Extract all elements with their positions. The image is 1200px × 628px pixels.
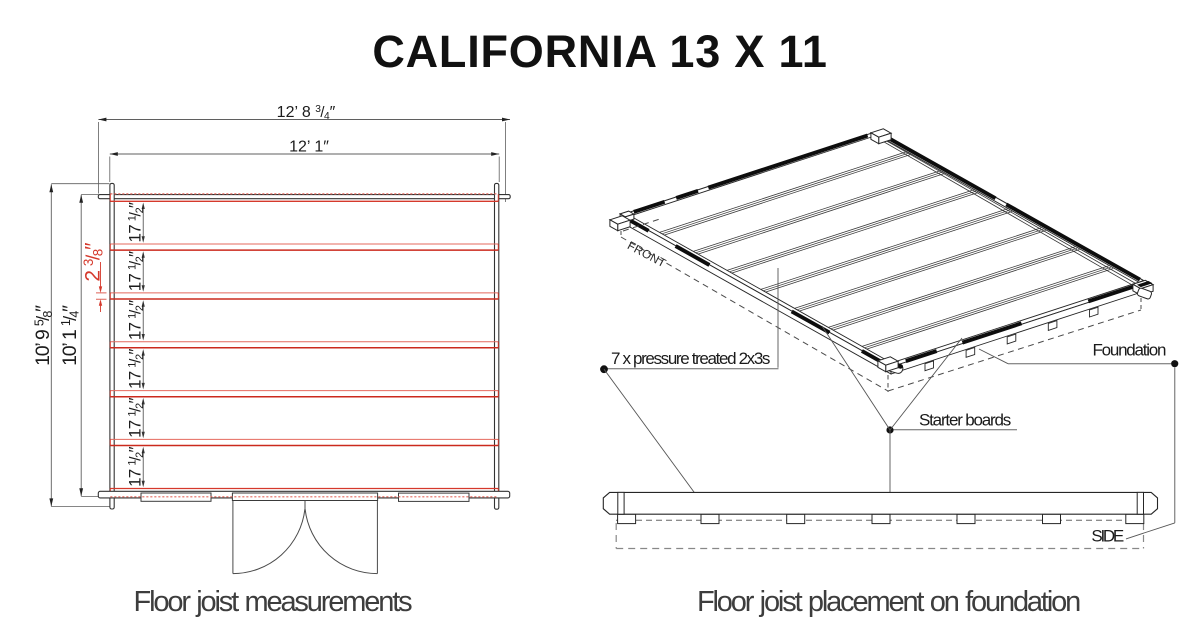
svg-text:17 1/2″: 17 1/2″ xyxy=(125,300,145,340)
svg-text:17 1/2″: 17 1/2″ xyxy=(125,202,145,242)
svg-text:12’ 1″: 12’ 1″ xyxy=(289,139,329,156)
svg-text:Foundation: Foundation xyxy=(1093,340,1166,359)
svg-text:17 1/2″: 17 1/2″ xyxy=(125,398,145,438)
svg-text:7 x pressure treated 2x3s: 7 x pressure treated 2x3s xyxy=(611,349,770,368)
svg-text:17 1/2″: 17 1/2″ xyxy=(125,251,145,291)
svg-text:17 1/2″: 17 1/2″ xyxy=(125,349,145,389)
svg-text:Starter boards: Starter boards xyxy=(919,411,1011,430)
svg-text:SIDE: SIDE xyxy=(1091,526,1123,545)
svg-text:Floor joist measurements: Floor joist measurements xyxy=(134,586,413,618)
svg-text:CALIFORNIA 13 X 11: CALIFORNIA 13 X 11 xyxy=(372,26,827,77)
svg-text:Floor joist placement on found: Floor joist placement on foundation xyxy=(697,586,1080,618)
svg-text:17 1/2″: 17 1/2″ xyxy=(125,447,145,487)
